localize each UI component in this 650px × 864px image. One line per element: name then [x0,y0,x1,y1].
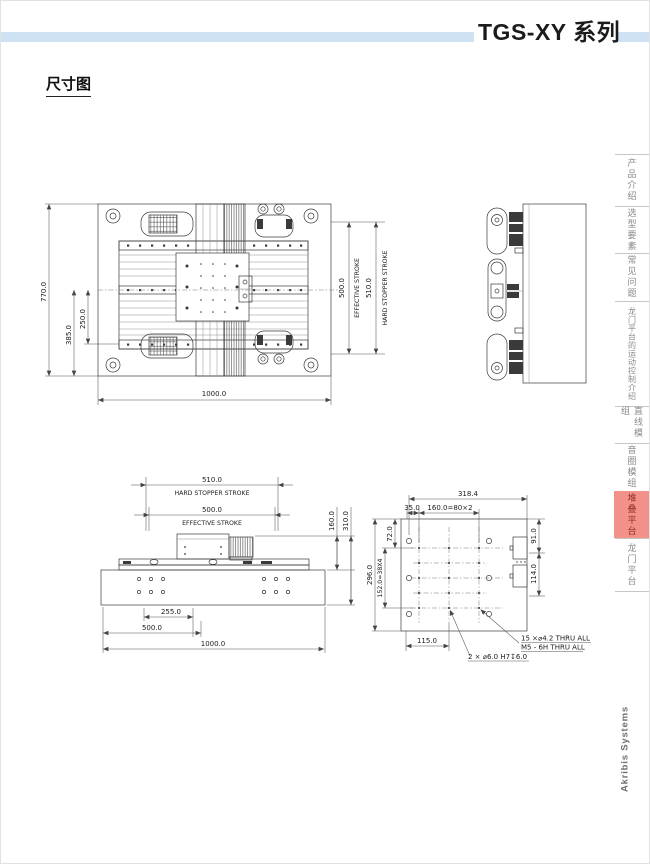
dim-label: 310.0 [342,511,350,531]
dim-label: 255.0 [161,608,181,616]
dim-label: 114.0 [530,564,538,584]
brand-vertical-text: Akribis Systems [607,701,643,797]
front-view-drawing: 510.0 HARD STOPPER STROKE 500.0 EFFECTIV… [93,469,363,669]
header-accent-bar-right [618,32,650,42]
sidebar-tab-linear-module[interactable]: 直线模组 [614,406,650,443]
dim-label: 35.0 [404,504,420,512]
dim-label: 152.0=38X4 [377,558,384,597]
sidebar-tab-product-intro[interactable]: 产品介绍 [614,154,650,206]
top-view-drawing: 770.0 385.0 250.0 1000.0 500.0 EFFECTIVE… [41,189,441,424]
document-title: TGS-XY 系列 [478,13,620,47]
dim-label: 160.0 [328,511,336,531]
dim-label: 500.0 [338,278,346,298]
dim-label: HARD STOPPER STROKE [175,490,250,497]
header-accent-bar-left [1,32,474,42]
side-view-drawing [471,196,596,391]
dim-label: 385.0 [65,325,73,345]
dim-label: 1000.0 [201,640,226,648]
dim-label: 160.0=80×2 [427,504,472,512]
dowel-note: 2 × ⌀6.0 H7↧6.0 [468,653,527,661]
dim-label: 318.4 [458,490,479,498]
dim-label: 1000.0 [202,390,227,398]
tab-label: 常见问题 [626,255,639,299]
sidebar-tab-faq[interactable]: 常见问题 [614,253,650,301]
dim-label: 91.0 [530,528,538,544]
dim-label: 72.0 [386,526,394,542]
page: TGS-XY 系列 尺寸图 产品介绍 选型要素 常见问题 龙门平台的运动控制介绍… [0,0,650,864]
dim-label: EFFECTIVE STROKE [354,258,361,318]
tab-label: 直线模组 [619,406,645,443]
dim-label: 500.0 [142,624,162,632]
tab-label: 龙门平台 [626,543,639,587]
tab-label: 龙门平台的运动控制介绍 [627,307,638,401]
hole-note-line2: M5 - 6H THRU ALL [521,644,585,652]
sidebar-tab-stacked-stage[interactable]: 堆叠平台 [614,491,650,538]
dim-label: 510.0 [365,278,373,298]
dim-label: HARD STOPPER STROKE [382,250,389,325]
section-title: 尺寸图 [46,73,91,97]
sidebar-tab-voice-coil[interactable]: 音圈模组 [614,443,650,491]
dim-label: 510.0 [202,476,222,484]
dim-label: EFFECTIVE STROKE [182,520,242,527]
plate-view-drawing: 318.4 35.0 160.0=80×2 72.0 152.0=38X4 29… [369,483,616,683]
tab-label: 选型要素 [626,208,639,252]
dim-label: 296.0 [366,565,374,585]
dim-label: 115.0 [417,637,437,645]
tab-label: 产品介绍 [626,158,639,202]
front-view-geometry [101,534,325,605]
top-view-geometry [98,204,339,376]
dim-label: 770.0 [40,282,48,302]
sidebar-tab-selection[interactable]: 选型要素 [614,206,650,253]
plate-view-geometry [401,519,527,631]
hole-note-line1: 15 ×⌀4.2 THRU ALL [521,635,590,643]
tab-label: 堆叠平台 [626,493,639,537]
tab-divider [615,591,649,592]
sidebar-tab-gantry-stage[interactable]: 龙门平台 [614,538,650,591]
dim-label: 500.0 [202,506,222,514]
dim-label: 250.0 [79,309,87,329]
side-view-geometry [487,204,586,383]
tab-label: 音圈模组 [626,445,639,489]
sidebar-tab-gantry-motion[interactable]: 龙门平台的运动控制介绍 [614,301,650,406]
